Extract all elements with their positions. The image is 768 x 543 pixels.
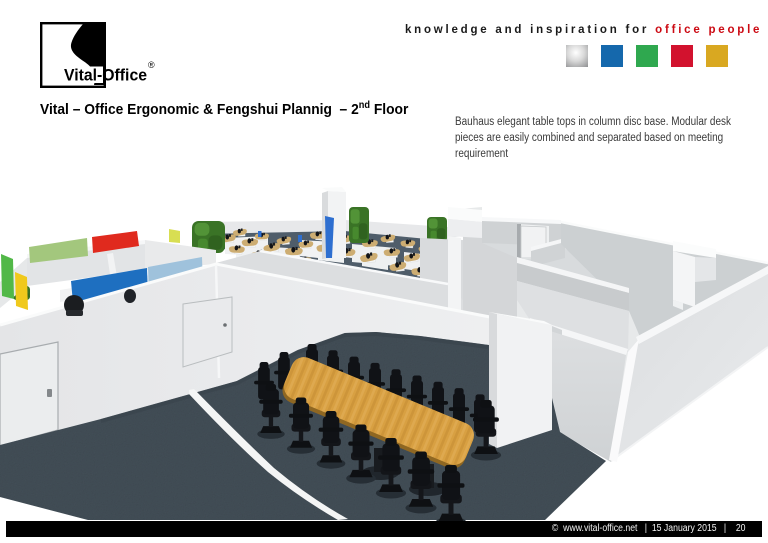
svg-text:®: ® [148,60,155,70]
svg-text:Vital-Office: Vital-Office [64,67,147,85]
